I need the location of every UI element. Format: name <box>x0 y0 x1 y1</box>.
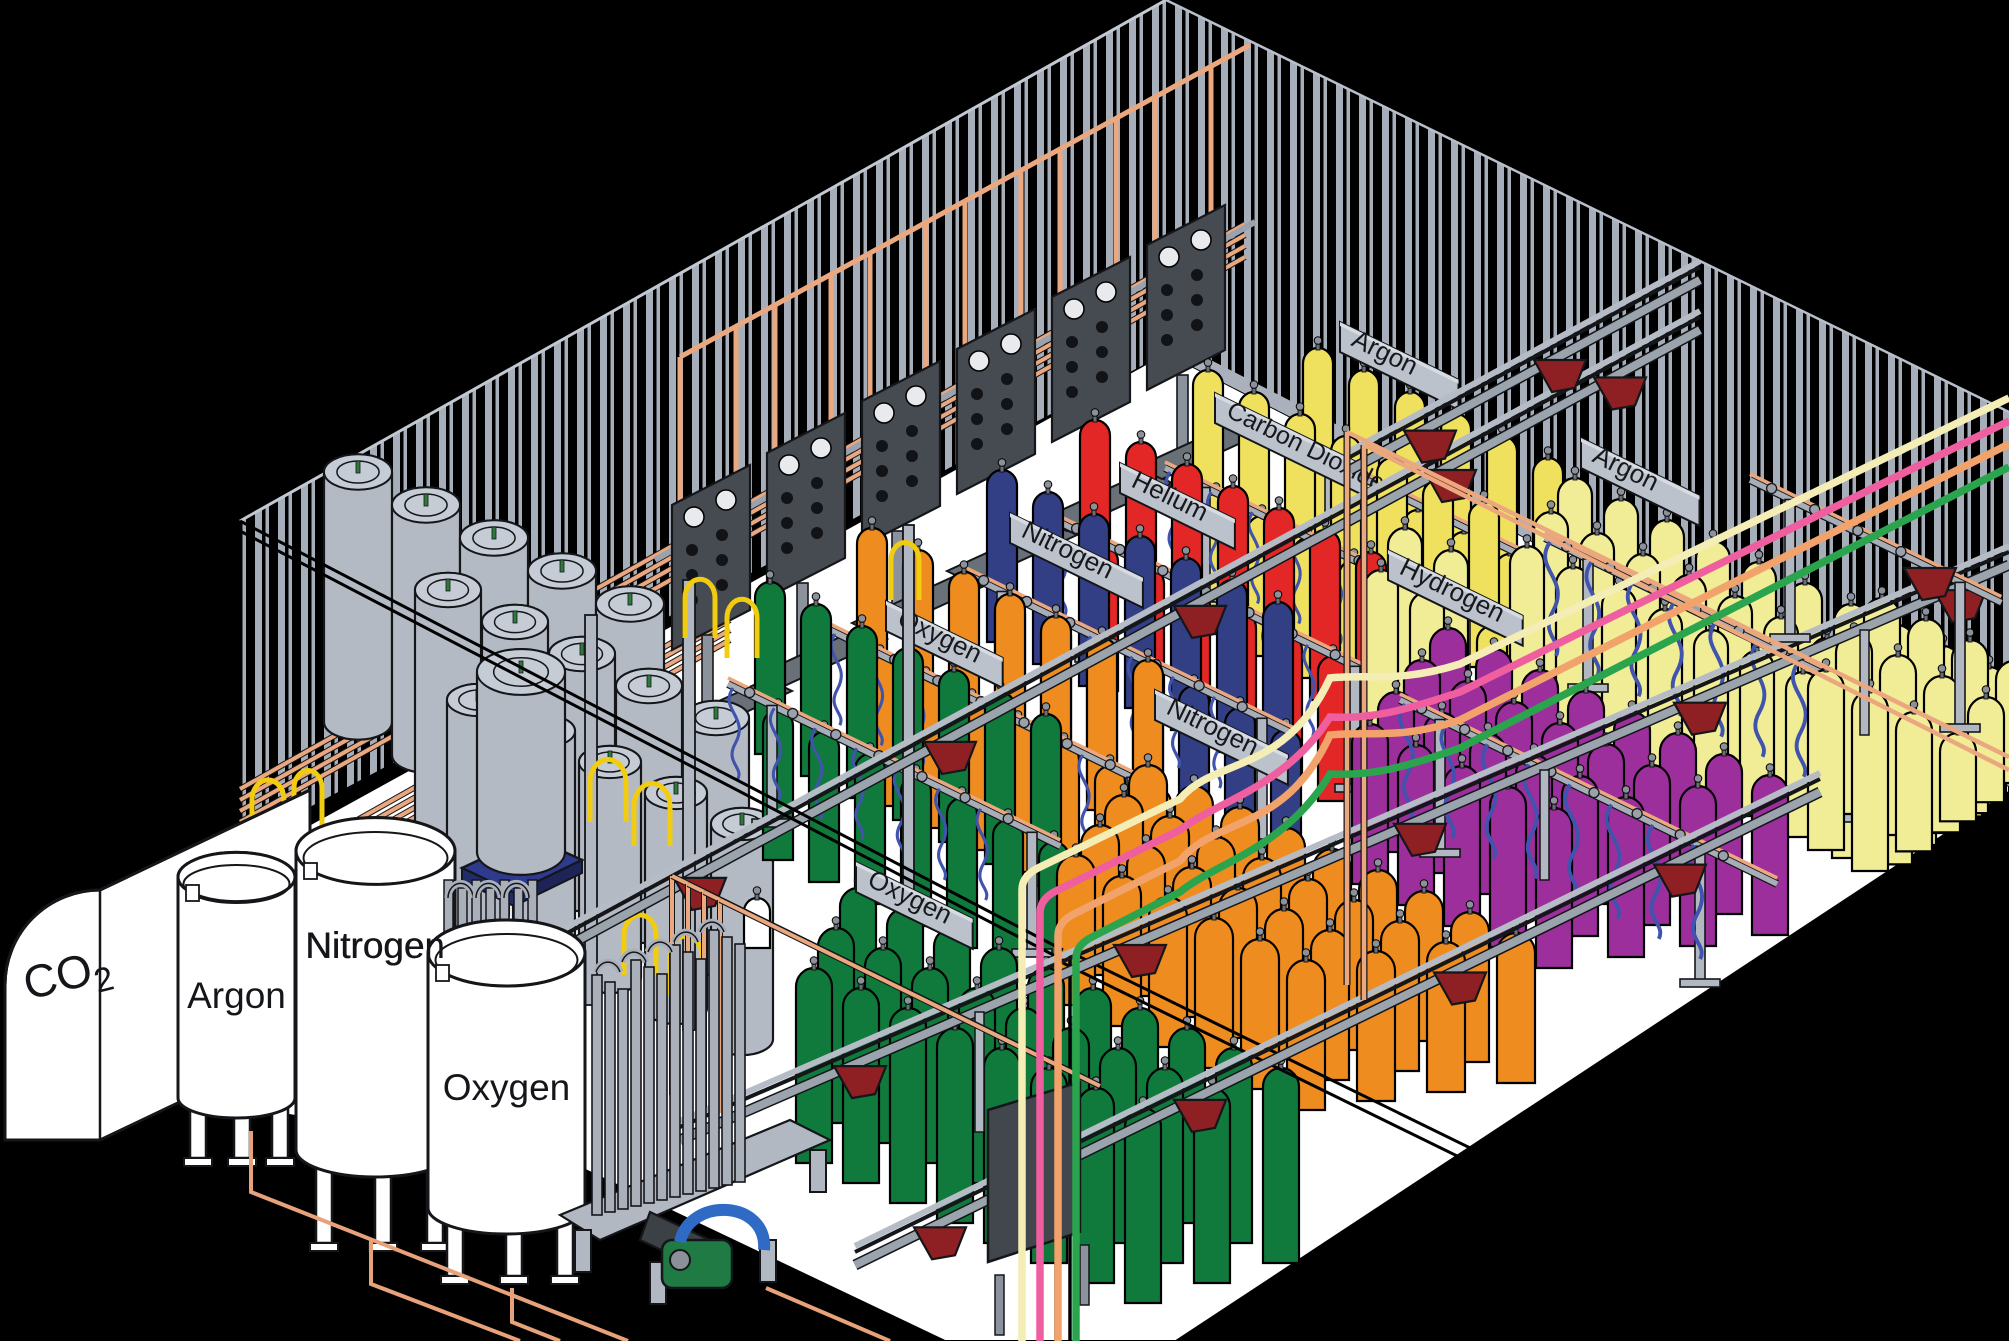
svg-text:Oxygen: Oxygen <box>443 1067 571 1108</box>
svg-text:Argon: Argon <box>187 975 286 1016</box>
svg-text:Nitrogen: Nitrogen <box>305 925 445 966</box>
